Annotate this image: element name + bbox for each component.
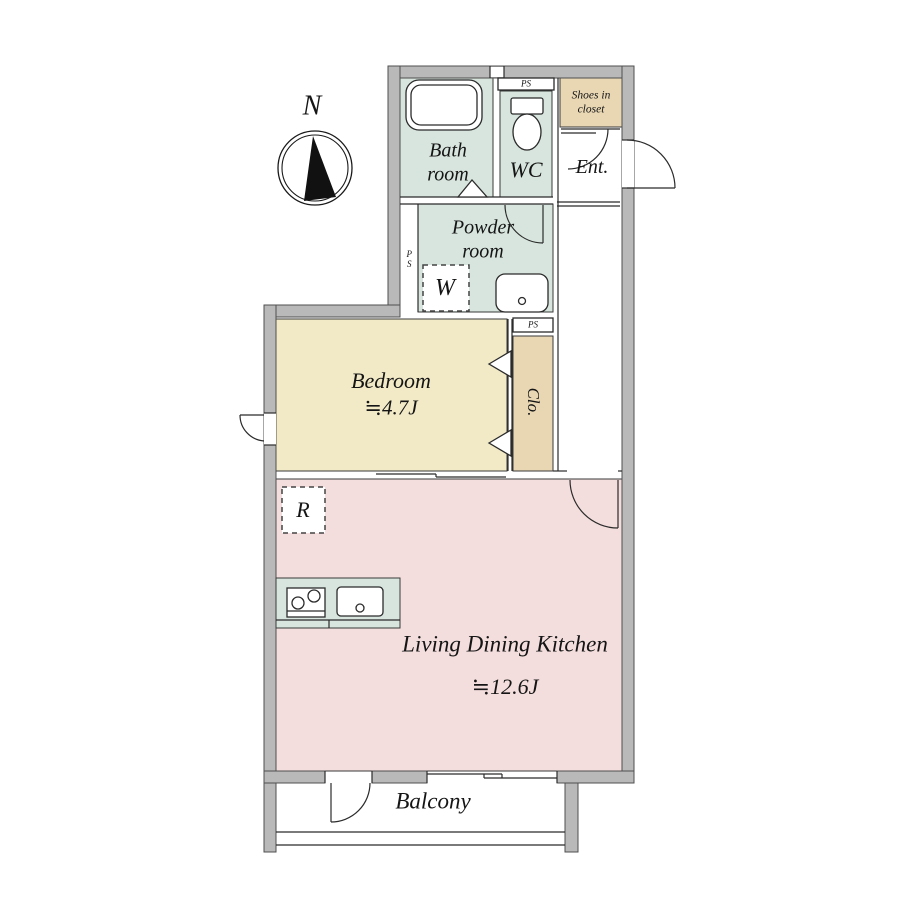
wall-bottom-3 [557,771,634,783]
bathroom-label: Bath room [412,139,484,186]
washing-machine-label: W [435,274,455,302]
bedroom-area-label: ≒4.7J [364,396,417,421]
floor-plan-page: N Bath room WC Ent. Shoes in closet Powd… [0,0,920,920]
pipe-space-mid-label: PS [528,320,538,331]
powder-sink-icon [496,274,548,312]
toilet-icon [511,98,543,150]
pipe-space-top-label: PS [521,79,531,90]
wc-label: WC [510,157,543,183]
wall-bottom-1 [264,771,325,783]
stove-icon [287,588,325,617]
sliding-door-bedroom [376,474,506,477]
ldk-label: Living Dining Kitchen [400,630,610,657]
bedroom-window-swing [240,415,264,441]
top-wall-vent-gap [490,67,504,77]
sliding-window-balcony [427,774,557,778]
refrigerator-label: R [296,497,309,523]
kitchen-counter [276,578,400,628]
front-door-gap [622,140,634,188]
bathtub-icon [406,80,482,130]
bedroom-label: Bedroom [351,368,431,394]
balcony-wall-left [264,783,276,852]
wall-step [264,305,400,317]
wall-bottom-2 [372,771,427,783]
balcony-door-swing [331,783,370,822]
pipe-space-left-label: PS [404,249,415,269]
wall-top [388,66,634,78]
kitchen-sink-icon [337,587,383,616]
balcony-wall-right [565,783,578,852]
bedroom-window-gap [264,413,276,445]
compass-north-label: N [303,89,322,122]
entrance-label: Ent. [576,156,609,180]
balcony-label: Balcony [395,787,470,814]
ldk-area-label: ≒12.6J [472,674,539,700]
shoes-closet-label: Shoes in closet [561,89,621,116]
wall-upper-left [388,66,400,317]
balcony-railing [276,832,565,845]
wall-lower-left [264,305,276,783]
powder-room-label: Powder room [437,216,529,263]
floor-plan-drawing [0,0,920,920]
closet-label: Clo. [523,388,543,417]
compass-icon [278,131,352,205]
